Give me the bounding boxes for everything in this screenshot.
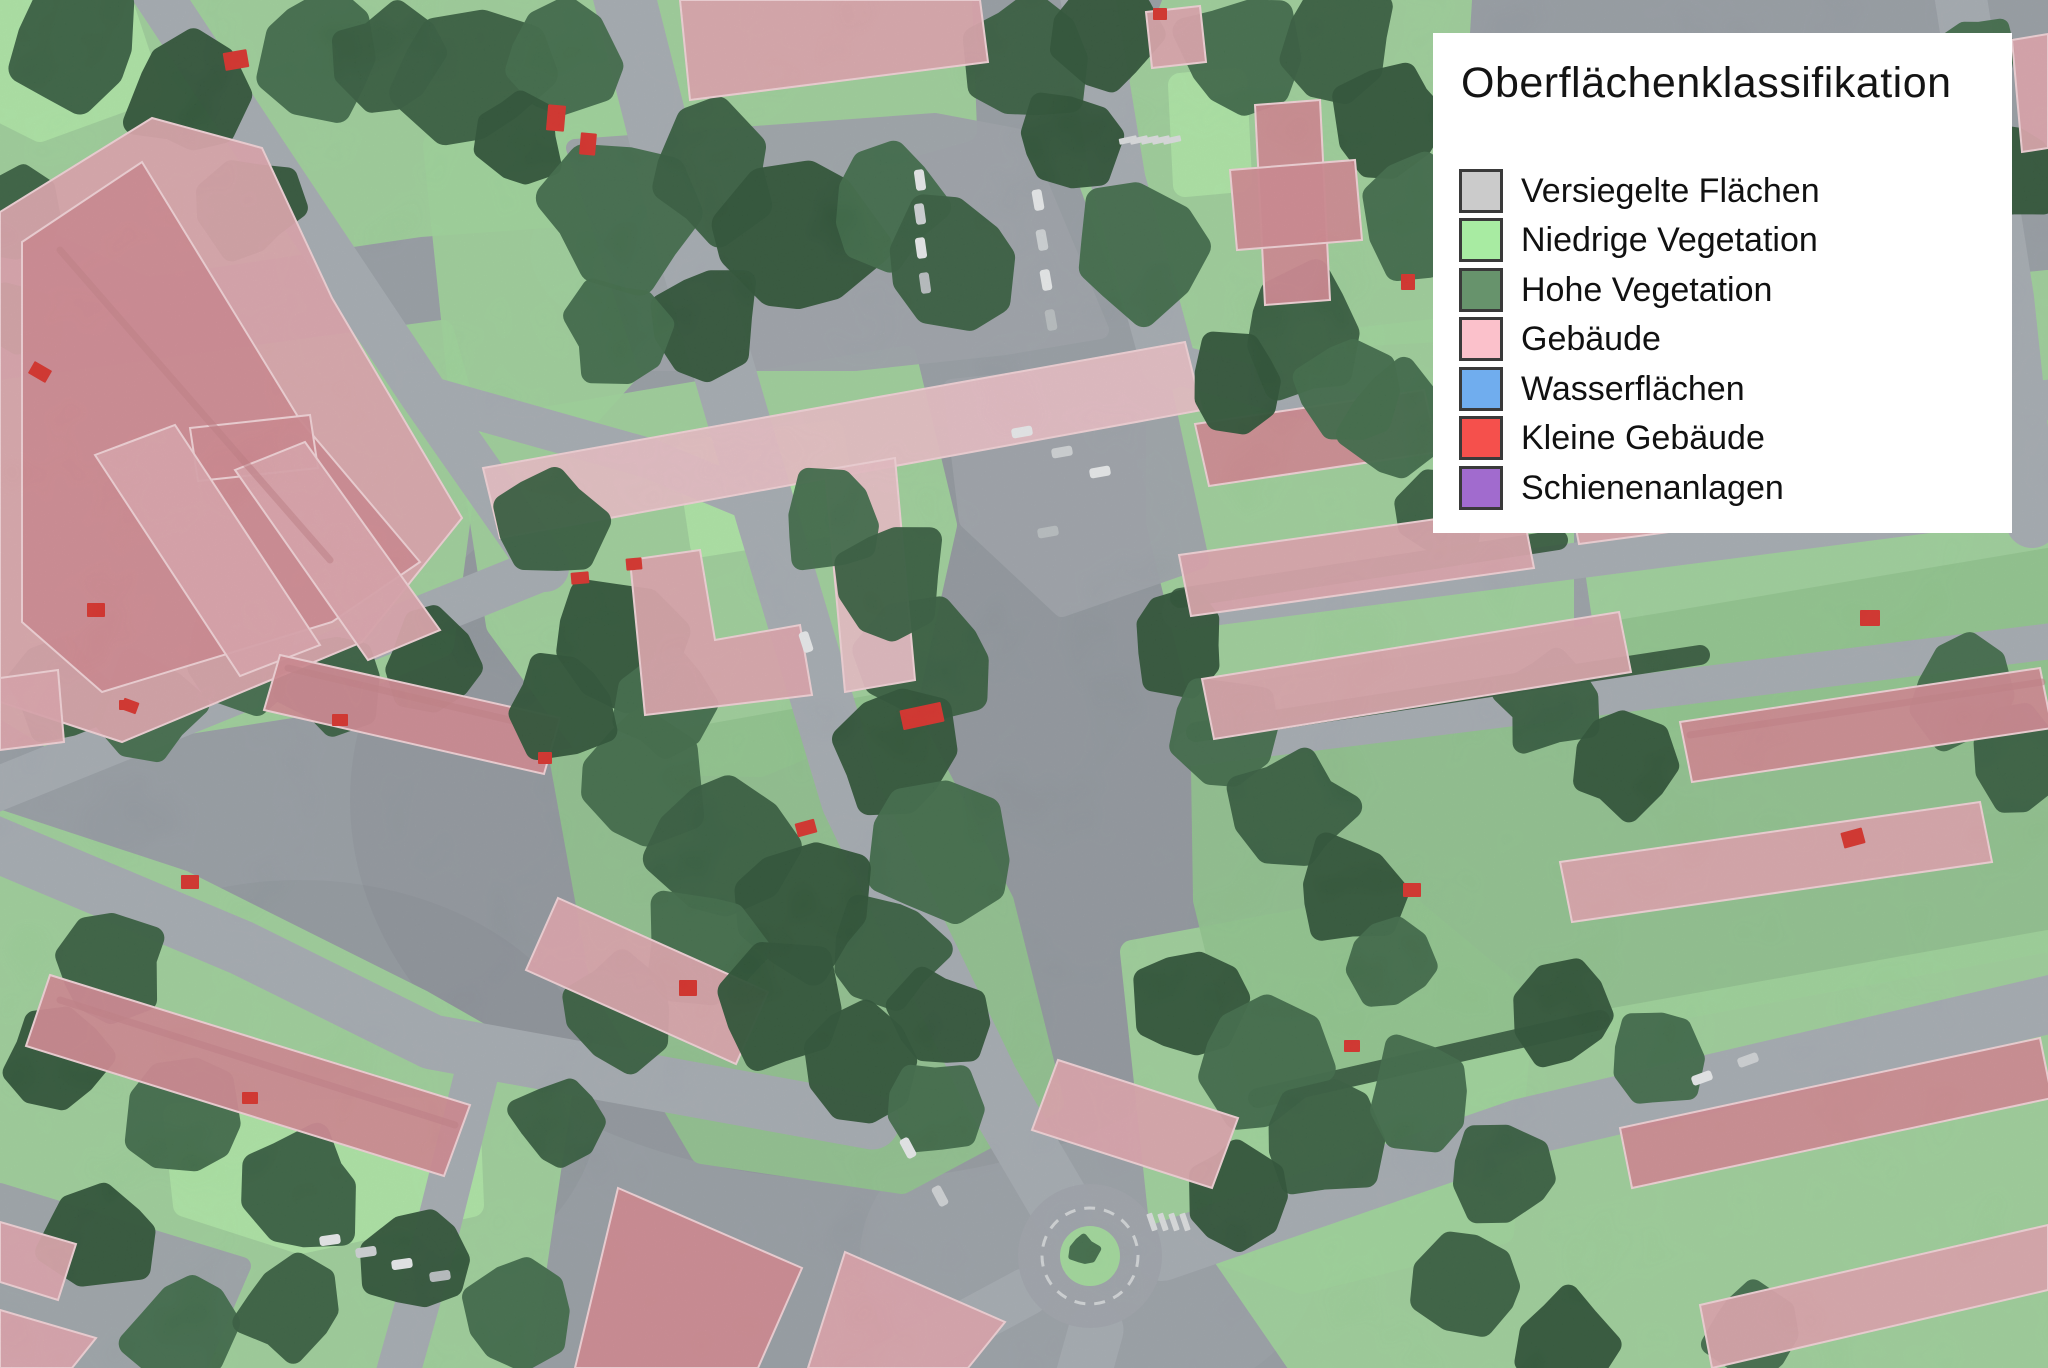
legend-item-label: Gebäude <box>1521 322 1661 356</box>
legend-item-label: Wasserflächen <box>1521 372 1745 406</box>
classification-map: Oberflächenklassifikation Versiegelte Fl… <box>0 0 2048 1368</box>
legend-item: Schienenanlagen <box>1459 465 1992 510</box>
legend-item-label: Hohe Vegetation <box>1521 273 1772 307</box>
legend-item-label: Versiegelte Flächen <box>1521 174 1820 208</box>
legend-swatch-1 <box>1459 218 1503 262</box>
legend-swatch-5 <box>1459 416 1503 460</box>
legend: Oberflächenklassifikation Versiegelte Fl… <box>1433 33 2012 533</box>
legend-item: Gebäude <box>1459 317 1992 362</box>
legend-item: Versiegelte Flächen <box>1459 168 1992 213</box>
legend-item: Wasserflächen <box>1459 366 1992 411</box>
legend-title: Oberflächenklassifikation <box>1461 59 1992 108</box>
legend-swatch-2 <box>1459 268 1503 312</box>
legend-swatch-6 <box>1459 466 1503 510</box>
legend-item-label: Schienenanlagen <box>1521 471 1784 505</box>
legend-swatch-0 <box>1459 169 1503 213</box>
legend-swatch-3 <box>1459 317 1503 361</box>
legend-item-label: Niedrige Vegetation <box>1521 223 1818 257</box>
legend-items: Versiegelte FlächenNiedrige VegetationHo… <box>1459 168 1992 510</box>
legend-item: Kleine Gebäude <box>1459 416 1992 461</box>
legend-item-label: Kleine Gebäude <box>1521 421 1765 455</box>
legend-item: Niedrige Vegetation <box>1459 218 1992 263</box>
legend-item: Hohe Vegetation <box>1459 267 1992 312</box>
legend-swatch-4 <box>1459 367 1503 411</box>
